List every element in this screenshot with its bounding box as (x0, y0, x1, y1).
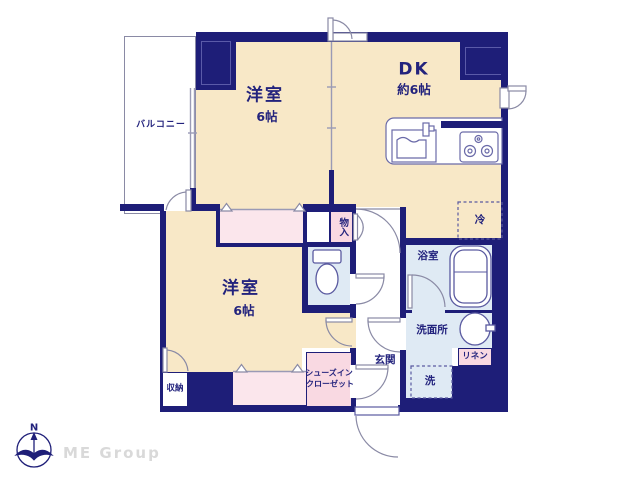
label-linen: リネン (462, 352, 488, 361)
label-shoes-closet-line2: クローゼット (306, 381, 354, 390)
washbasin-icon (460, 313, 495, 345)
door-balcony-icon (164, 190, 191, 211)
label-monoire: 物入 (337, 218, 347, 237)
label-dk-size: 約6帖 (397, 83, 431, 97)
label-dk: DK (398, 61, 429, 80)
label-bedroom-top-size: 6帖 (256, 110, 277, 124)
door-shunou-icon (163, 348, 188, 372)
faucet-icon (423, 123, 429, 136)
label-shoes-closet-line1: シューズイン (305, 370, 353, 379)
label-bedroom-bottom: 洋室 (222, 280, 260, 299)
label-laundry: 洗 (425, 376, 436, 388)
label-shunou: 収納 (166, 384, 183, 393)
label-washroom: 洗面所 (416, 325, 448, 337)
door-dk-right-icon (500, 86, 526, 109)
door-shoes-closet-icon (350, 365, 388, 399)
fixtures-layer (0, 0, 640, 480)
door-bedroom-bottom-icon (326, 318, 356, 348)
compass-north-label: N (30, 423, 38, 434)
label-bathroom: 浴室 (418, 251, 439, 263)
bathtub-icon (450, 246, 491, 307)
door-entrance-icon (355, 405, 399, 457)
logo-text: ME Group (63, 444, 161, 462)
label-bedroom-bottom-size: 6帖 (233, 304, 254, 318)
door-toilet-icon (350, 274, 384, 304)
toilet-icon (313, 250, 341, 294)
label-fridge: 冷 (475, 215, 486, 227)
label-bedroom-top: 洋室 (246, 87, 284, 106)
floor-plan: バルコニー 洋室 6帖 DK 約6帖 洋室 6帖 物入 冷 浴室 洗面所 リネン… (0, 0, 640, 480)
counter-half-wall (441, 121, 508, 128)
partition-slider-icon (327, 42, 336, 170)
door-bathroom-icon (408, 275, 445, 314)
label-balcony: バルコニー (136, 121, 186, 131)
door-dk-top-icon (328, 18, 367, 41)
compass-icon (16, 432, 52, 467)
window-balcony-icon (188, 88, 197, 188)
door-washroom-icon (368, 318, 406, 352)
door-monoire-icon (354, 214, 364, 240)
label-entrance: 玄関 (375, 355, 396, 367)
